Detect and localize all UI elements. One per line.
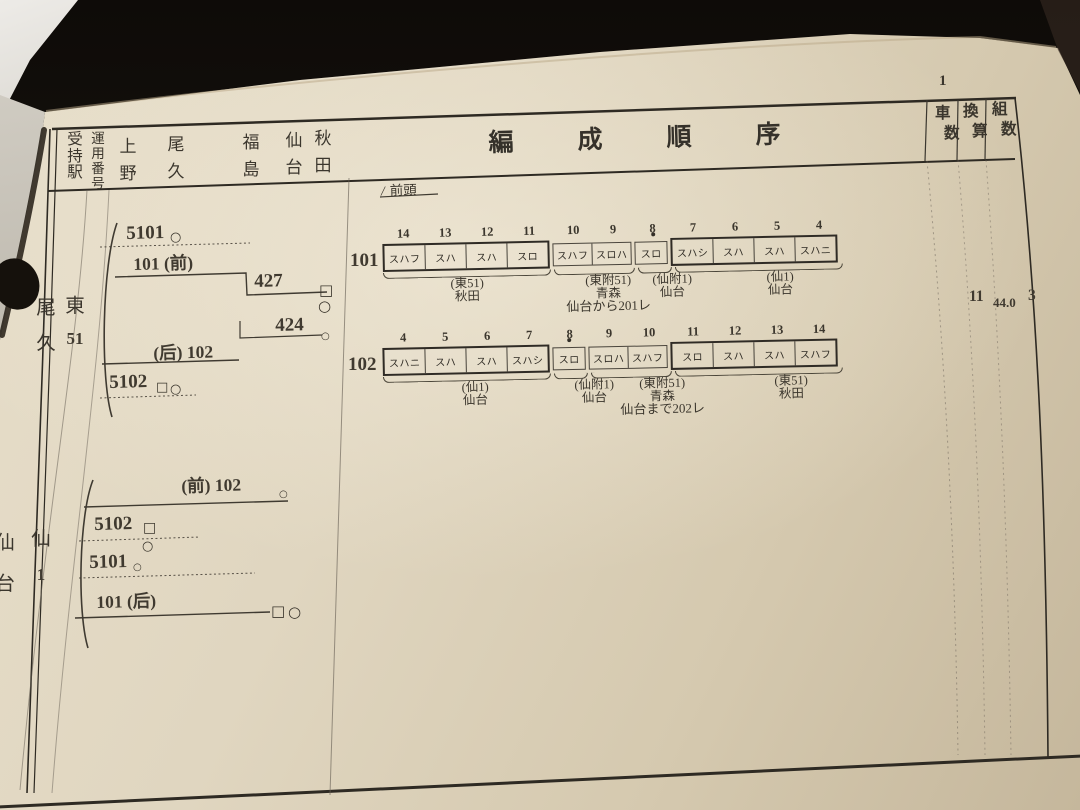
- car-group-senfu1: スロ: [634, 241, 667, 265]
- car-number: 9: [593, 222, 633, 238]
- group-note: 仙台まで202レ: [593, 402, 733, 417]
- char: 持: [63, 149, 87, 166]
- char: 東: [62, 289, 88, 318]
- car-cell: スロハ: [589, 347, 628, 369]
- car-cell: スロ: [553, 348, 584, 370]
- car-number: 14: [798, 321, 840, 337]
- g1-train-101-front: 101 (前): [133, 250, 193, 276]
- num-group: 9 10: [589, 325, 669, 342]
- square-mark: □: [319, 283, 333, 298]
- car-number: 13: [756, 322, 798, 338]
- car-group-higashifu51: スハフ スロハ: [552, 242, 631, 267]
- g1-train-424: 424: [275, 314, 304, 337]
- car-cell: スハ: [466, 243, 507, 268]
- car-number: 10: [629, 325, 669, 341]
- operation-number: 51: [62, 329, 88, 349]
- char: 1: [75, 329, 84, 348]
- group-label: (東51) 秋田: [721, 373, 862, 402]
- car-group-sen1: スハニ スハ スハ スハシ: [382, 344, 550, 375]
- char: 台: [283, 154, 305, 181]
- car-number: 6: [714, 219, 756, 235]
- num-group: 11 12 13 14: [672, 321, 840, 340]
- group1-total-conversion: 44.0: [993, 295, 1016, 311]
- car-cell: スロ: [635, 242, 666, 264]
- car-cell: スハ: [425, 348, 466, 373]
- car-number: 4: [798, 217, 840, 233]
- square-mark: □: [271, 604, 285, 619]
- car-cell: スハ: [713, 238, 754, 263]
- square-mark: □: [156, 381, 168, 394]
- car-cell: スロ: [672, 343, 713, 368]
- g1-set-5101: 5101: [126, 222, 165, 245]
- group-label: (東附51) 青森 仙台まで202レ: [592, 376, 733, 417]
- group-destination: 秋田: [397, 289, 537, 304]
- group-label: (仙1) 仙台: [710, 269, 851, 298]
- char: 野: [117, 160, 139, 187]
- char: 数: [1001, 122, 1022, 138]
- front-head-marker: /前頭: [381, 179, 417, 200]
- header-col-operation: 運 用 番 号: [88, 131, 108, 191]
- car-cell: スハシ: [507, 347, 547, 372]
- car-number: 14: [382, 226, 424, 242]
- header-station-fukushima: 福 島: [240, 129, 262, 183]
- car-cell: スハフ: [384, 245, 425, 270]
- car-number: 10: [553, 223, 593, 239]
- car-cell: スハフ: [628, 346, 666, 368]
- char: 数: [944, 126, 965, 142]
- car-number: 12: [714, 323, 756, 339]
- char: 尾: [165, 131, 187, 158]
- header-station-oku: 尾 久: [165, 131, 187, 185]
- car-number: 9: [589, 326, 629, 342]
- formation-101-train-label: 101: [350, 250, 379, 272]
- char: 仙: [28, 522, 54, 551]
- front-marker-slash: /: [381, 183, 385, 198]
- header-col-cars: 車 数: [935, 106, 965, 141]
- car-cell: スハフ: [553, 244, 592, 266]
- char: 上: [117, 133, 139, 160]
- car-cell: スロ: [507, 243, 547, 268]
- char: 仙: [283, 127, 305, 154]
- car-cell: スハ: [466, 347, 507, 372]
- car-number: 5: [424, 329, 466, 345]
- group-destination: 仙台: [710, 282, 850, 297]
- header-col-sets: 組 数: [992, 102, 1022, 137]
- char: 5: [67, 329, 76, 348]
- car-cell: スハ: [713, 342, 754, 367]
- char: 福: [240, 129, 262, 156]
- header-col-station: 受 持 駅: [63, 132, 87, 182]
- formation-102-train-label: 102: [348, 354, 377, 376]
- car-number: 6: [466, 328, 508, 344]
- car-number: 11: [508, 223, 550, 239]
- car-number: 5: [756, 218, 798, 234]
- square-mark: □: [143, 521, 156, 535]
- char: 秋: [312, 125, 334, 152]
- header-station-ueno: 上 野: [117, 133, 139, 187]
- circle-mark: ○: [170, 231, 181, 244]
- g2-train-101-rear: 101 (后): [96, 588, 156, 614]
- g2-set-5102: 5102: [94, 513, 133, 536]
- header-station-akita: 秋 田: [312, 125, 334, 179]
- car-cell: スハニ: [384, 349, 425, 374]
- page-number: 1: [939, 73, 947, 90]
- char: 車: [935, 106, 965, 122]
- g1-train-102-rear: (后) 102: [153, 339, 213, 365]
- circle-mark: ○: [318, 299, 331, 314]
- operation-number: 1: [28, 565, 54, 585]
- car-group-higashi51: スハフ スハ スハ スロ: [382, 240, 550, 271]
- car8-dot-mark: [567, 338, 571, 342]
- char: 算: [972, 124, 993, 140]
- circle-mark: ○: [279, 490, 288, 500]
- group-label: (東51) 秋田: [397, 276, 538, 305]
- photo-of-formation-sheet: 1 受 持 駅 運 用 番 号 上 野 尾 久 福 島 仙 台 秋 田 編成順序…: [0, 0, 1080, 810]
- g1-set-5102: 5102: [109, 371, 148, 394]
- header-station-sendai: 仙 台: [283, 127, 305, 181]
- car-cell: スハ: [754, 237, 795, 262]
- group-note: 仙台から201レ: [539, 299, 679, 314]
- group2-station: 仙 台: [0, 523, 18, 605]
- g2-train-102-front: (前) 102: [181, 472, 241, 498]
- char: 運: [88, 131, 108, 146]
- g2-set-5101: 5101: [89, 551, 128, 574]
- char: 組: [992, 102, 1022, 118]
- char: 駅: [63, 165, 87, 182]
- car-group-higashi51: スロ スハ スハ スハフ: [670, 338, 838, 369]
- char: 久: [165, 158, 187, 185]
- car-cell: スハ: [425, 244, 466, 269]
- char: 番: [88, 161, 108, 176]
- car-cell: スハシ: [672, 239, 713, 264]
- group1-total-cars: 11: [969, 288, 984, 306]
- char: 久: [33, 326, 59, 361]
- formation-101: 14 13 12 11 10 9 8 7 6 5 4 スハフ スハ: [382, 217, 844, 329]
- car-cell: スハニ: [795, 237, 835, 262]
- char: 島: [240, 156, 262, 183]
- circle-mark: ○: [133, 563, 142, 573]
- char: 号: [88, 176, 108, 191]
- num-group: 4 5 6 7: [382, 327, 550, 346]
- circle-mark: ○: [170, 383, 181, 396]
- num-group: 14 13 12 11: [382, 223, 550, 242]
- group1-operation: 東 51: [62, 289, 88, 349]
- char: 仙: [0, 523, 18, 564]
- char: 尾: [33, 291, 59, 326]
- num-group: 10 9: [553, 222, 633, 239]
- char: 換: [963, 104, 993, 120]
- car-group-senfu1: スロ: [552, 347, 585, 371]
- car-number: 12: [466, 224, 508, 240]
- circle-mark: ○: [288, 605, 301, 620]
- g1-train-427: 427: [254, 270, 283, 293]
- group-labels-row: (東51) 秋田 (東附51) 青森 仙台から201レ (仙附1) 仙台 (仙1…: [383, 269, 844, 329]
- car-number: 7: [672, 220, 714, 236]
- group-labels-row: (仙1) 仙台 (仙附1) 仙台 (東附51) 青森 仙台まで202レ (東51…: [383, 373, 844, 433]
- car-cell: スハフ: [795, 341, 835, 366]
- num-group: 7 6 5 4: [672, 217, 840, 236]
- group2-operation: 仙 1: [28, 522, 54, 585]
- car-cell: スハ: [754, 341, 795, 366]
- car-group-sen1: スハシ スハ スハ スハニ: [670, 234, 838, 265]
- car-cell: スロハ: [592, 243, 630, 265]
- front-marker-label: 前頭: [390, 183, 417, 199]
- group-destination: 秋田: [721, 386, 861, 401]
- circle-mark: ○: [321, 332, 330, 342]
- car-number: 13: [424, 225, 466, 241]
- car-group-higashifu51: スロハ スハフ: [588, 345, 667, 370]
- header-col-conversion: 換 算: [963, 104, 993, 139]
- group1-total-sets: 3: [1028, 287, 1036, 305]
- circle-mark: ○: [142, 540, 153, 553]
- char: 用: [88, 146, 108, 161]
- group1-station: 尾 久: [33, 291, 59, 361]
- car-number: 11: [672, 324, 714, 340]
- car-number: 4: [382, 330, 424, 346]
- char: 田: [312, 152, 334, 179]
- formation-102: 4 5 6 7 8 9 10 11 12 13 14 スハニ スハ: [382, 321, 844, 433]
- car-number: 7: [508, 327, 550, 343]
- char: 台: [0, 564, 18, 605]
- char: 受: [63, 132, 87, 149]
